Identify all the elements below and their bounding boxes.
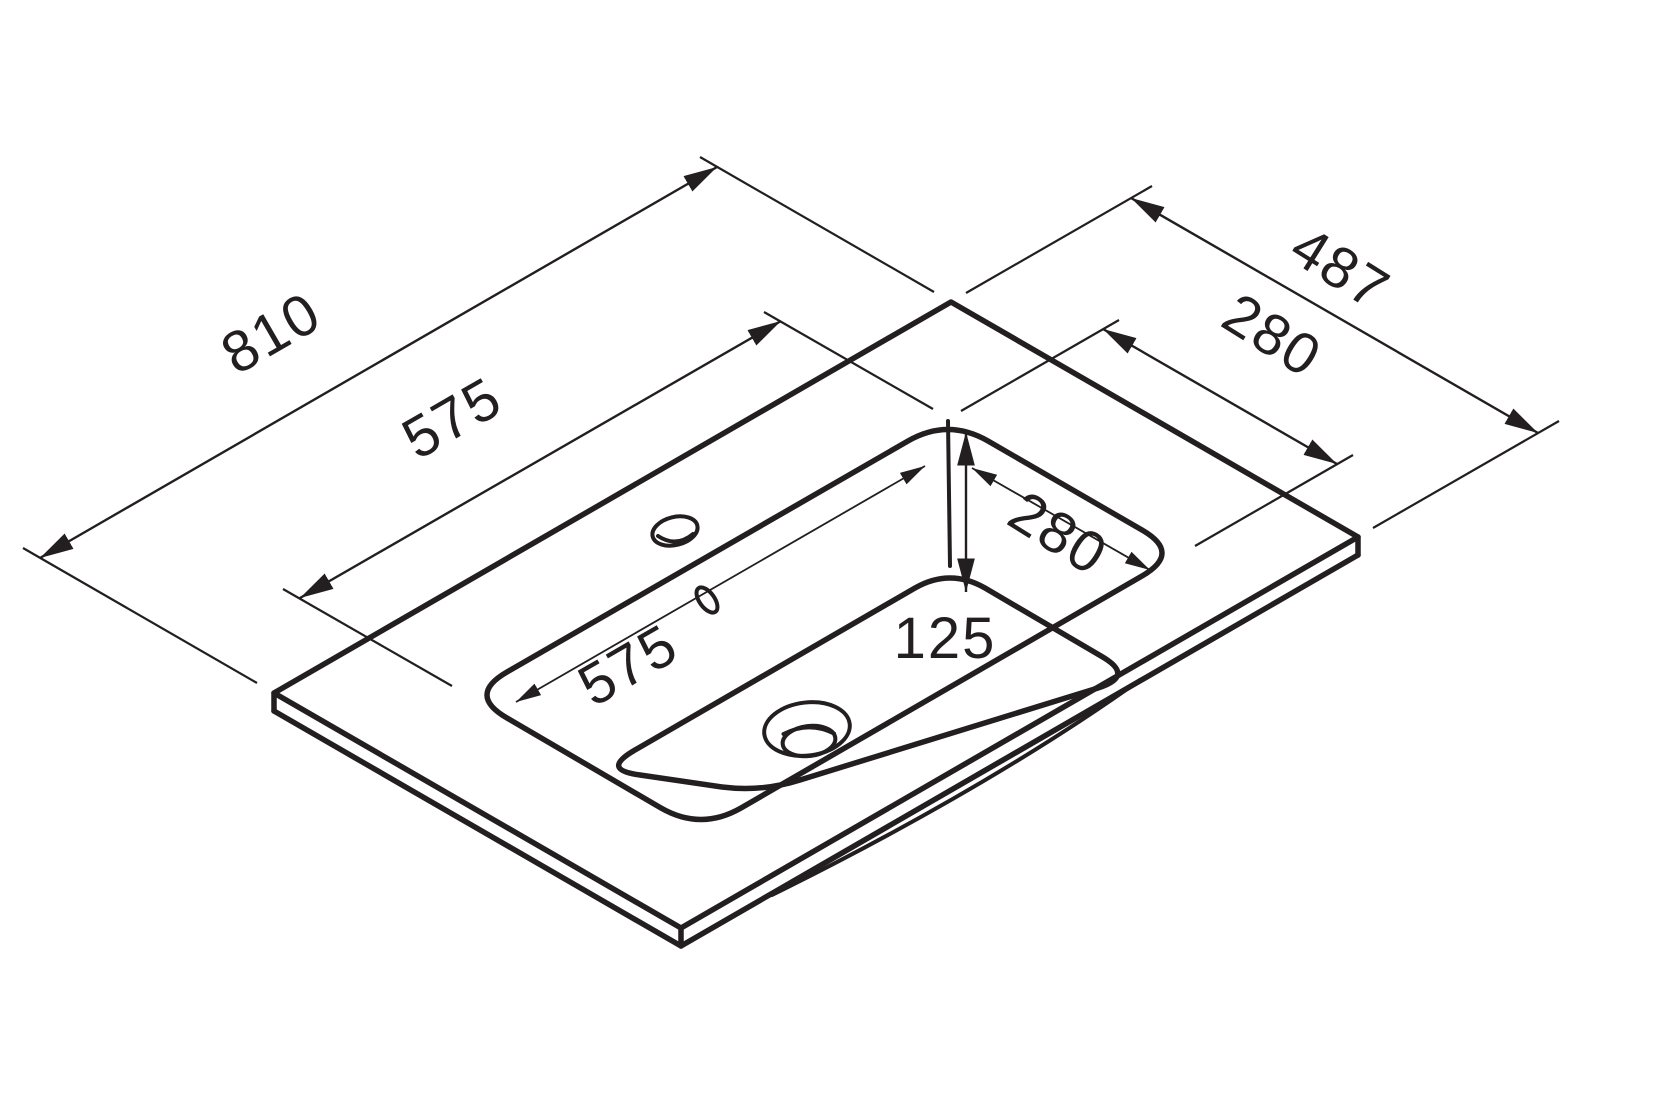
faucet-hole <box>649 512 700 550</box>
basin-rim-opening <box>487 430 1162 820</box>
dim-label-280-outer: 280 <box>1212 281 1334 391</box>
basin-floor-outline <box>619 578 1118 788</box>
isometric-drawing: 810 575 487 280 575 <box>0 0 1680 1120</box>
dim-label-487: 487 <box>1280 214 1402 324</box>
dim-label-575-outer: 575 <box>391 364 513 472</box>
basin-wall-corner-edge <box>948 421 950 566</box>
dimension-125: 125 <box>894 432 997 671</box>
overflow-hole <box>692 584 721 616</box>
dim-label-280-inner: 280 <box>998 479 1120 589</box>
dim-label-125: 125 <box>894 606 997 671</box>
dimension-575-inner: 575 <box>516 466 925 719</box>
drawing-page: 810 575 487 280 575 <box>0 0 1680 1120</box>
dim-label-810: 810 <box>210 279 332 387</box>
slab-bottom-edges <box>274 555 1358 946</box>
